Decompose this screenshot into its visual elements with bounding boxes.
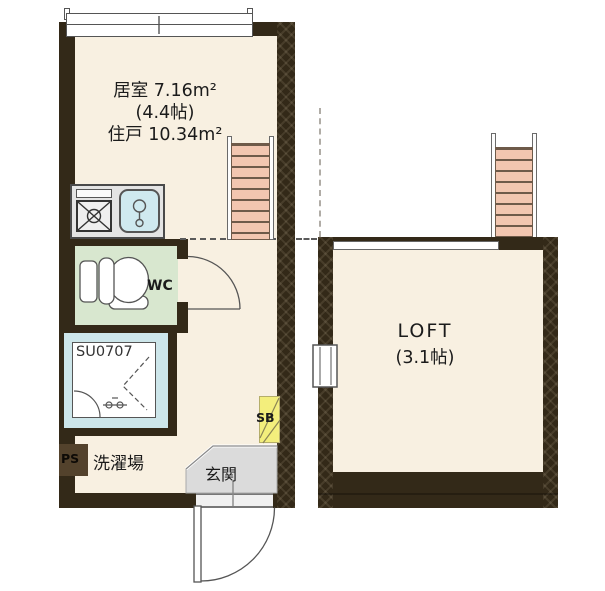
room-area-label: 居室 7.16m² xyxy=(80,80,250,102)
loft-label: LOFT xyxy=(354,318,496,345)
laundry-label: 洗濯場 xyxy=(93,449,144,474)
loft-window xyxy=(313,345,337,387)
stove-burner-icon xyxy=(78,202,110,230)
bath-folding-door xyxy=(74,357,149,417)
bath-unit-label: SU0707 xyxy=(76,344,133,360)
bath-faucet-icon xyxy=(103,398,127,408)
entrance-door xyxy=(194,506,275,582)
wc-label: WC xyxy=(147,278,173,294)
unit-area-label: 住戸 10.34m² xyxy=(80,124,250,146)
wc-door xyxy=(188,257,240,310)
loft-text: LOFT (3.1帖) xyxy=(354,318,496,372)
shoe-cabinet-label: SB xyxy=(256,410,275,425)
floor-plan: 居室 7.16m² (4.4帖) 住戸 10.34m² WC SU0707 PS… xyxy=(0,0,605,591)
toilet xyxy=(80,258,149,310)
pipe-space-label: PS xyxy=(61,451,79,466)
room-size-label: (4.4帖) xyxy=(80,102,250,124)
entrance-label: 玄関 xyxy=(205,461,237,485)
loft-size-label: (3.1帖) xyxy=(354,345,496,372)
faucet-icon xyxy=(134,200,146,227)
main-room-text: 居室 7.16m² (4.4帖) 住戸 10.34m² xyxy=(80,80,250,146)
